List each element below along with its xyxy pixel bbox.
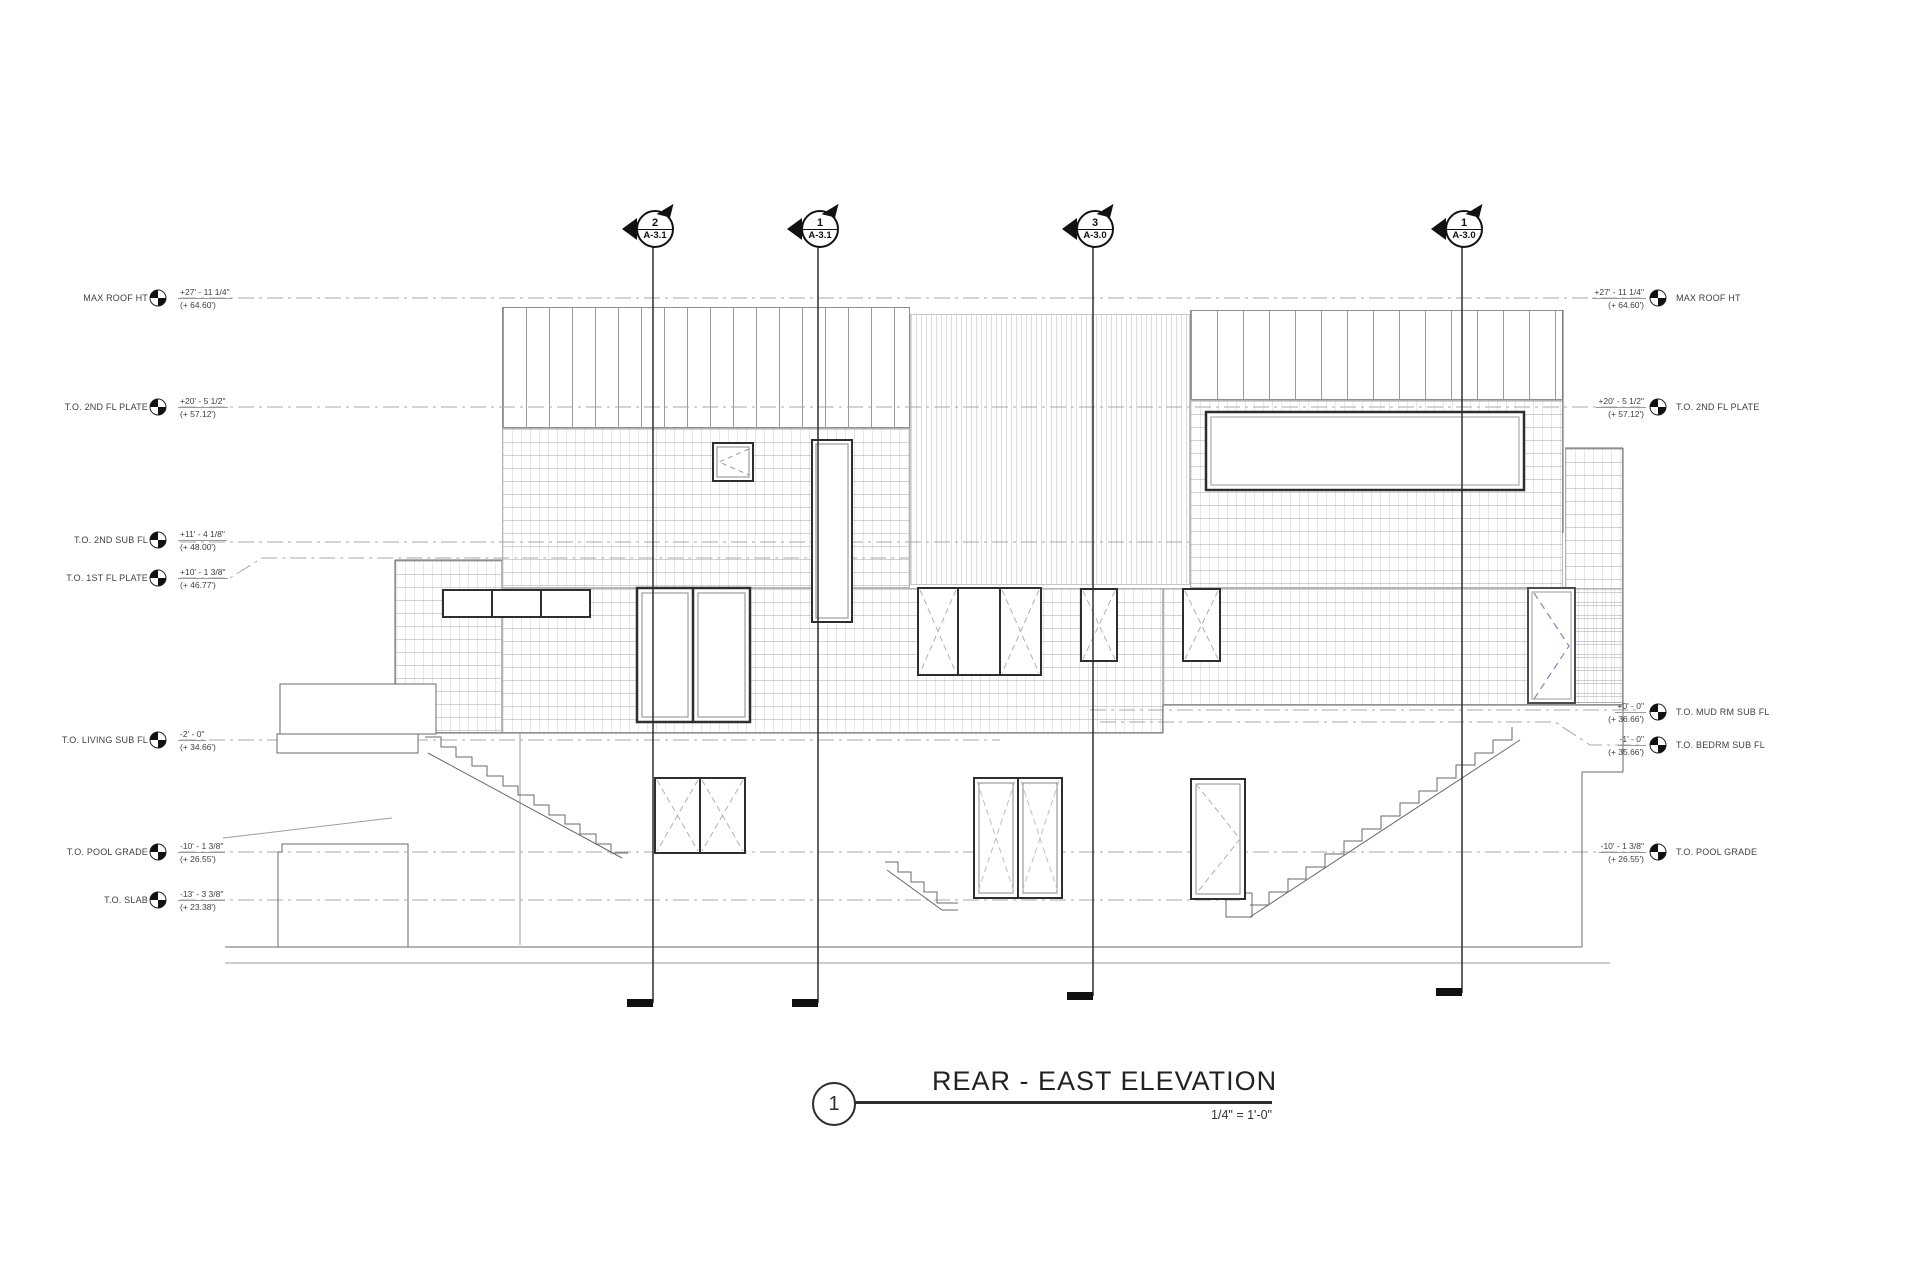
level-elev: (+ 64.60'): [178, 299, 218, 310]
level-dim: +20' - 5 1/2": [178, 396, 228, 408]
level-name: T.O. LIVING SUB FL: [30, 735, 148, 745]
level-name: T.O. 2ND SUB FL: [30, 535, 148, 545]
level-name: T.O. SLAB: [30, 895, 148, 905]
section-marker-1-A31: 1 A-3.1: [801, 210, 839, 248]
level-name: MAX ROOF HT: [1676, 293, 1846, 303]
grade-lines: [223, 733, 1610, 963]
level-label-mud-rm-sub-fl-right: +0' - 0"(+ 36.66') T.O. MUD RM SUB FL: [1532, 701, 1846, 723]
stair-middle: [885, 862, 958, 910]
view-number-bubble: 1: [812, 1082, 856, 1126]
level-elev: (+ 48.00'): [178, 541, 218, 552]
level-dim: +10' - 1 3/8": [178, 567, 228, 579]
level-elev: (+ 35.66'): [1606, 746, 1646, 757]
level-name: T.O. 2ND FL PLATE: [1676, 402, 1846, 412]
level-name: T.O. 2ND FL PLATE: [30, 402, 148, 412]
level-elev: (+ 23.38'): [178, 901, 218, 912]
level-elev: (+ 64.60'): [1606, 299, 1646, 310]
view-number: 1: [828, 1093, 839, 1116]
level-label-living-sub-fl-left: T.O. LIVING SUB FL -2' - 0"(+ 34.66'): [30, 729, 218, 751]
section-marker-2-A31: 2 A-3.1: [636, 210, 674, 248]
level-elev: (+ 34.66'): [178, 741, 218, 752]
level-dim: -13' - 3 3/8": [178, 889, 225, 901]
level-dim: +11' - 4 1/8": [178, 529, 227, 541]
level-dim: -2' - 0": [178, 729, 206, 741]
planter-left: [278, 844, 408, 947]
level-elev: (+ 36.66'): [1606, 713, 1646, 724]
level-elev: (+ 26.55'): [178, 853, 218, 864]
level-dim: +20' - 5 1/2": [1596, 396, 1646, 408]
section-sheet: A-3.0: [1447, 229, 1481, 241]
level-label-slab-left: T.O. SLAB -13' - 3 3/8"(+ 23.38'): [30, 889, 225, 911]
level-elev: (+ 46.77'): [178, 579, 218, 590]
title-underline: [852, 1101, 1272, 1104]
level-name: T.O. POOL GRADE: [30, 847, 148, 857]
section-number: 1: [817, 217, 823, 229]
stair-left: [425, 737, 628, 858]
view-title: REAR - EAST ELEVATION: [932, 1066, 1272, 1097]
level-name: T.O. BEDRM SUB FL: [1676, 740, 1846, 750]
view-scale: 1/4" = 1'-0": [1072, 1108, 1272, 1122]
level-name: T.O. POOL GRADE: [1676, 847, 1846, 857]
level-dim: +27' - 11 1/4": [1592, 287, 1646, 299]
level-dim: -1' - 0": [1618, 734, 1646, 746]
level-label-2nd-fl-plate-right: +20' - 5 1/2"(+ 57.12') T.O. 2ND FL PLAT…: [1532, 396, 1846, 418]
level-elev: (+ 57.12'): [1606, 408, 1646, 419]
section-number: 2: [652, 217, 658, 229]
section-sheet: A-3.0: [1078, 229, 1112, 241]
level-dim: -10' - 1 3/8": [1599, 841, 1646, 853]
level-label-1st-fl-plate-left: T.O. 1ST FL PLATE +10' - 1 3/8"(+ 46.77'…: [30, 567, 228, 589]
level-name: MAX ROOF HT: [30, 293, 148, 303]
level-label-pool-grade-left: T.O. POOL GRADE -10' - 1 3/8"(+ 26.55'): [30, 841, 225, 863]
level-lines: [180, 298, 1640, 900]
section-marker-1-A30: 1 A-3.0: [1445, 210, 1483, 248]
level-dim: +27' - 11 1/4": [178, 287, 232, 299]
windows-and-doors: [443, 412, 1575, 899]
level-label-pool-grade-right: -10' - 1 3/8"(+ 26.55') T.O. POOL GRADE: [1532, 841, 1846, 863]
level-elev: (+ 26.55'): [1606, 853, 1646, 864]
level-dim: +0' - 0": [1615, 701, 1646, 713]
section-sheet: A-3.1: [638, 229, 672, 241]
level-label-max-roof-ht-right: +27' - 11 1/4"(+ 64.60') MAX ROOF HT: [1532, 287, 1846, 309]
level-elev: (+ 57.12'): [178, 408, 218, 419]
level-label-2nd-fl-plate-left: T.O. 2ND FL PLATE +20' - 5 1/2"(+ 57.12'…: [30, 396, 228, 418]
section-marker-3-A30: 3 A-3.0: [1076, 210, 1114, 248]
level-name: T.O. 1ST FL PLATE: [30, 573, 148, 583]
level-name: T.O. MUD RM SUB FL: [1676, 707, 1846, 717]
section-number: 1: [1461, 217, 1467, 229]
section-sheet: A-3.1: [803, 229, 837, 241]
stair-right: [1226, 727, 1520, 917]
elevation-target-symbols: [150, 290, 1666, 908]
elevation-sheet: 2 A-3.1 1 A-3.1 3 A-3.0 1 A-3.0 MAX ROOF…: [0, 0, 1920, 1280]
section-number: 3: [1092, 217, 1098, 229]
section-line-end-bars: [627, 988, 1462, 1007]
level-label-2nd-sub-fl-left: T.O. 2ND SUB FL +11' - 4 1/8"(+ 48.00'): [30, 529, 227, 551]
level-label-bedrm-sub-fl-right: -1' - 0"(+ 35.66') T.O. BEDRM SUB FL: [1532, 734, 1846, 756]
level-label-max-roof-ht-left: MAX ROOF HT +27' - 11 1/4"(+ 64.60'): [30, 287, 232, 309]
level-dim: -10' - 1 3/8": [178, 841, 225, 853]
deck-left: [277, 684, 436, 753]
